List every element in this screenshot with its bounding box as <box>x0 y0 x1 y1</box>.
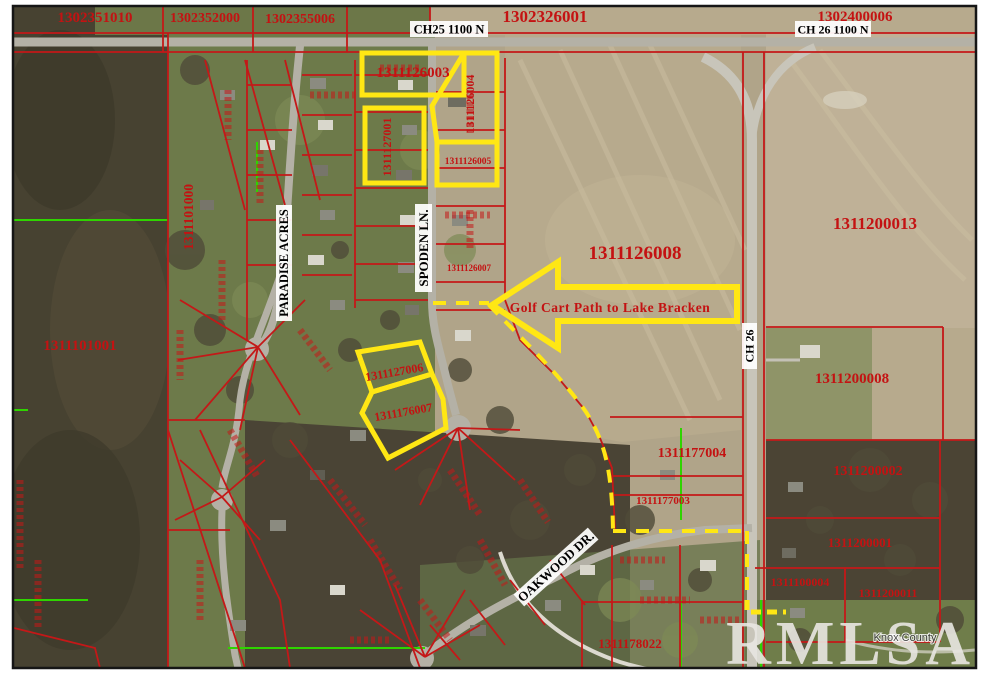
golf-cart-arrow-label: Golf Cart Path to Lake Bracken <box>510 300 711 315</box>
watermark: RMLSA Knox County <box>726 610 975 676</box>
parcel-label: 1311177003 <box>636 495 690 507</box>
road-label-text: CH 26 <box>743 330 757 363</box>
parcel-label: 1311200002 <box>833 464 902 479</box>
road-label-text: CH 26 1100 N <box>797 23 868 37</box>
road-label-text: CH25 1100 N <box>414 23 485 37</box>
parcel-label: 1311200013 <box>833 214 917 233</box>
watermark-sub: Knox County <box>874 632 937 644</box>
road-label-ch26: CH 26 <box>742 323 757 369</box>
parcel-label: 1311127001 <box>380 118 394 177</box>
watermark-brand: RMLSA <box>726 610 975 676</box>
parcel-label: 1311200011 <box>859 586 918 600</box>
parcel-label: 1302355006 <box>265 12 335 27</box>
parcel-label: 1311178022 <box>598 636 662 651</box>
road-label-ch25: CH25 1100 N <box>410 21 488 37</box>
parcel-label: 1311101000 <box>181 184 196 250</box>
parcel-label: 1311126005 <box>445 157 492 167</box>
parcel-label: 1302352000 <box>170 11 240 26</box>
parcel-label: 1302326001 <box>503 7 588 26</box>
parcel-label: 1311200001 <box>828 535 892 550</box>
parcel-label: 1302351010 <box>58 10 133 26</box>
parcel-map: Golf Cart Path to Lake Bracken 130235101… <box>0 0 989 676</box>
map-screenshot: Golf Cart Path to Lake Bracken 130235101… <box>0 0 989 676</box>
parcel-label: 1311126004 <box>463 75 477 134</box>
parcel-label: 1311200008 <box>815 371 889 387</box>
parcel-label: 1311177004 <box>658 446 726 461</box>
parcel-label: 1311101001 <box>43 338 116 354</box>
parcel-label: 1311100004 <box>771 575 830 589</box>
road-label-text: SPODEN LN. <box>416 209 431 286</box>
parcel-label: 1311126008 <box>589 243 682 264</box>
road-label-paradise: PARADISE ACRES <box>276 205 292 321</box>
road-label-ch26-1100n: CH 26 1100 N <box>795 21 871 37</box>
road-label-spoden: SPODEN LN. <box>415 204 432 292</box>
parcel-label: 1311126003 <box>376 65 449 81</box>
road-label-text: PARADISE ACRES <box>277 209 291 317</box>
parcel-label: 1311126007 <box>447 263 492 273</box>
